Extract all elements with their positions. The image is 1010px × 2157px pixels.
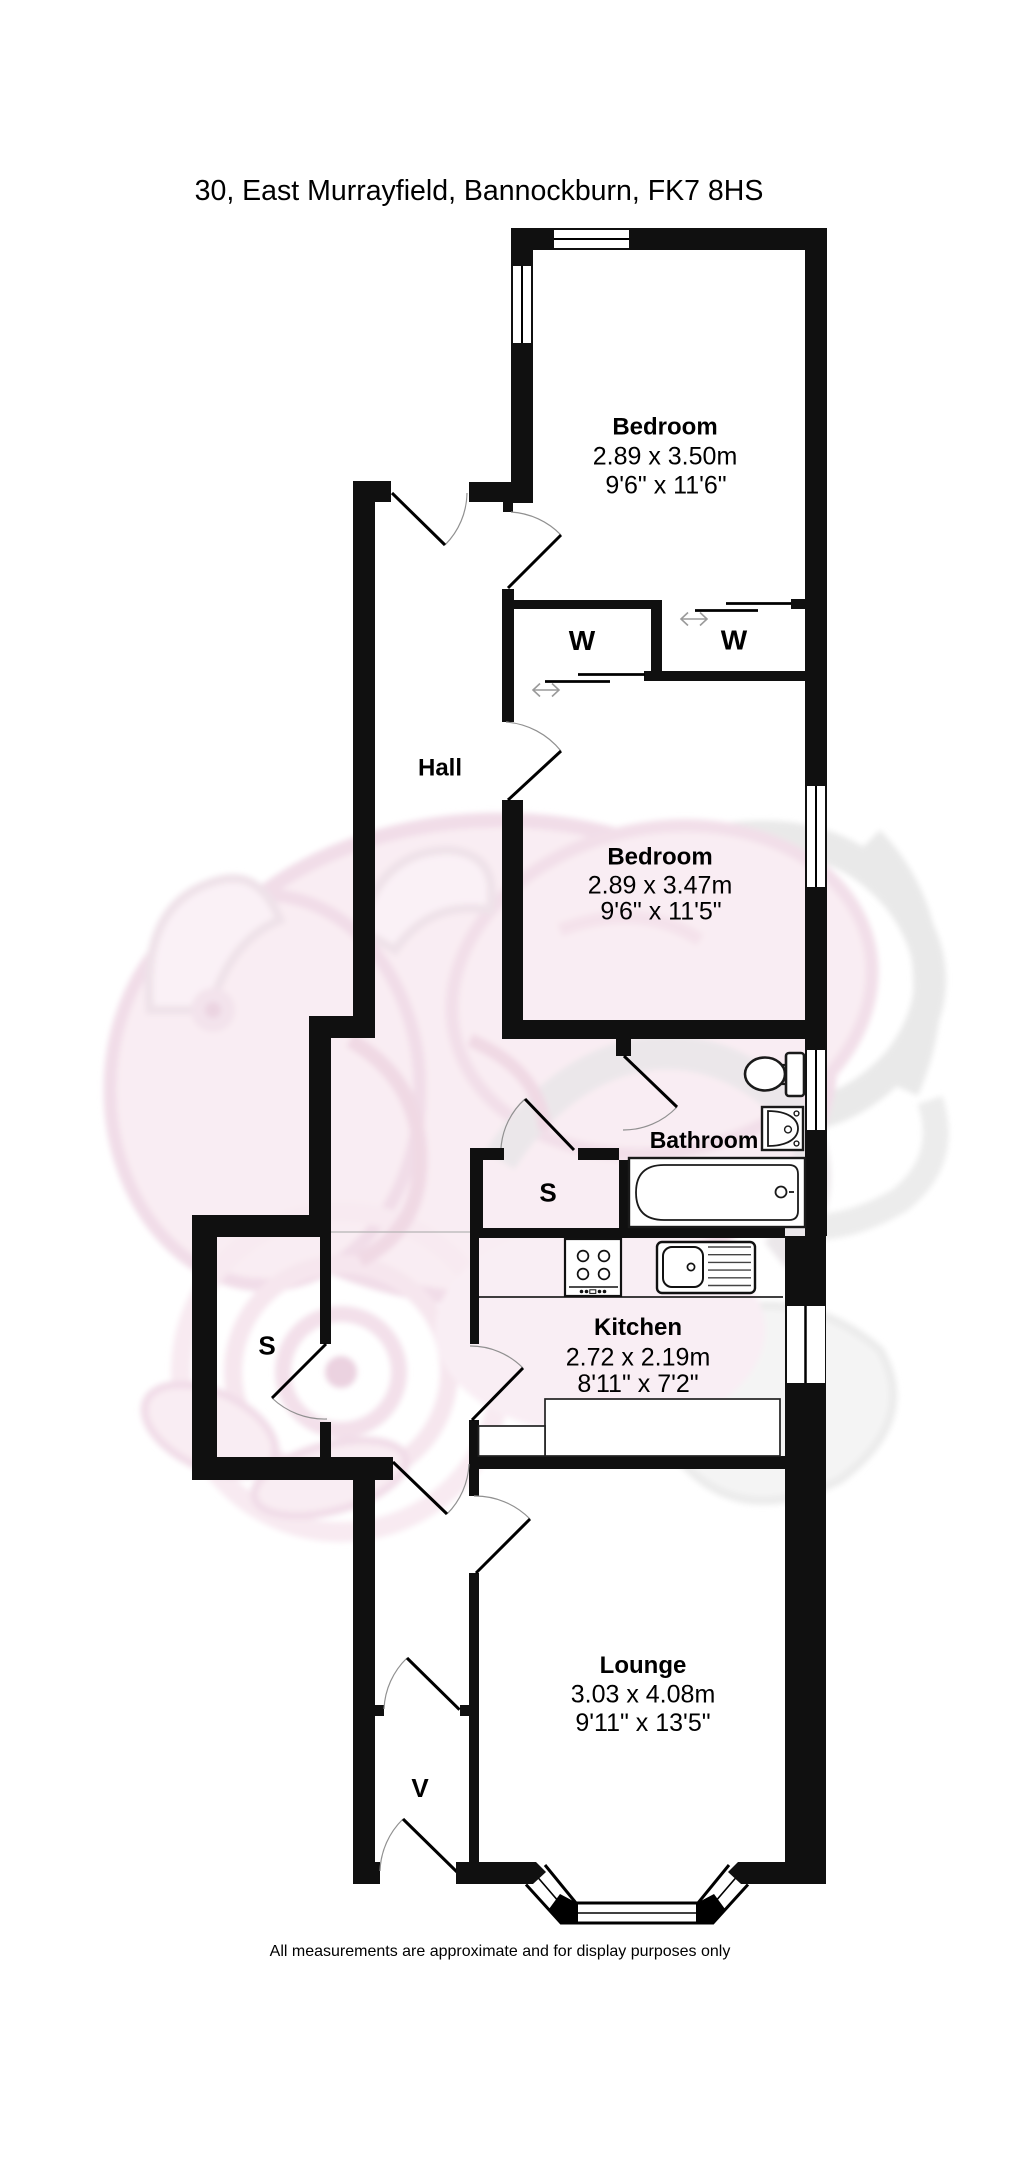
svg-text:2.89 x 3.50m: 2.89 x 3.50m xyxy=(593,443,738,471)
svg-text:V: V xyxy=(411,1773,429,1803)
svg-text:9'6" x 11'5": 9'6" x 11'5" xyxy=(600,898,721,926)
svg-text:S: S xyxy=(258,1331,275,1361)
svg-text:W: W xyxy=(721,625,748,656)
svg-text:Hall: Hall xyxy=(418,755,462,782)
svg-text:Bathroom: Bathroom xyxy=(650,1127,759,1153)
svg-text:Bedroom: Bedroom xyxy=(612,414,717,441)
svg-text:S: S xyxy=(539,1178,556,1208)
svg-text:2.72 x 2.19m: 2.72 x 2.19m xyxy=(566,1344,711,1372)
svg-text:2.89 x 3.47m: 2.89 x 3.47m xyxy=(588,872,733,900)
svg-text:9'6" x 11'6": 9'6" x 11'6" xyxy=(605,472,726,500)
svg-text:Bedroom: Bedroom xyxy=(607,844,712,871)
svg-text:30, East Murrayfield, Bannockb: 30, East Murrayfield, Bannockburn, FK7 8… xyxy=(195,175,764,207)
svg-text:W: W xyxy=(569,625,596,656)
svg-text:Lounge: Lounge xyxy=(600,1652,687,1679)
svg-text:Kitchen: Kitchen xyxy=(594,1314,682,1341)
svg-text:9'11" x 13'5": 9'11" x 13'5" xyxy=(575,1709,710,1737)
svg-text:8'11" x 7'2": 8'11" x 7'2" xyxy=(577,1370,698,1398)
svg-text:All measurements are approxima: All measurements are approximate and for… xyxy=(270,1943,731,1960)
svg-text:3.03 x 4.08m: 3.03 x 4.08m xyxy=(571,1681,716,1709)
